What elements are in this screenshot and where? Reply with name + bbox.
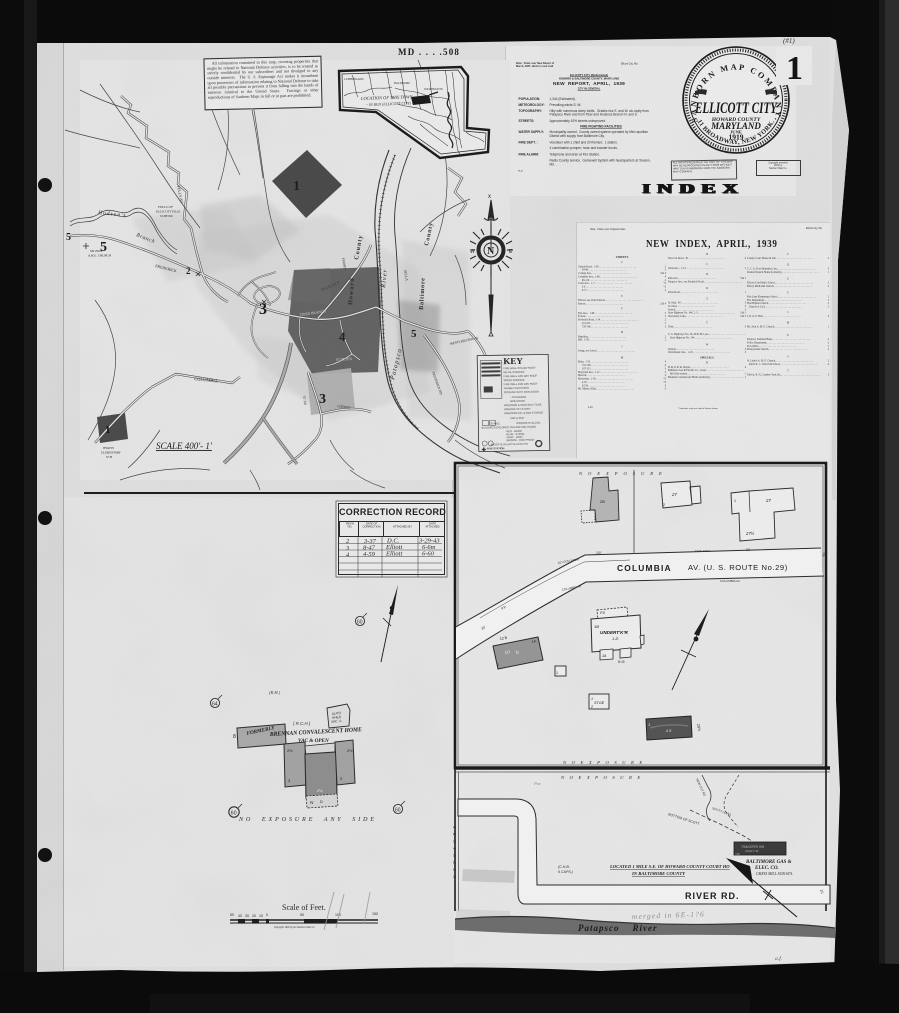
svg-text:60: 60: [357, 620, 363, 626]
svg-text:10: 10: [259, 914, 263, 918]
svg-text:40: 40: [238, 914, 242, 918]
svg-text:1B: 1B: [594, 624, 599, 629]
svg-text:27½: 27½: [745, 531, 755, 536]
svg-text:29½: 29½: [696, 723, 701, 732]
svg-text:N O E X P O S U R E: N O E X P O S U R E: [578, 471, 664, 476]
svg-text:50: 50: [230, 913, 234, 917]
svg-text:SCOTT LEVEL: SCOTT LEVEL: [712, 806, 733, 817]
svg-text:4: 4: [346, 551, 350, 558]
svg-text:E X P O S U R E: E X P O S U R E: [452, 824, 457, 879]
svg-text:12 B: 12 B: [499, 636, 508, 641]
svg-text:6 CAPS.): 6 CAPS.): [558, 870, 573, 874]
svg-text:Patapsco River: Patapsco River: [578, 923, 658, 933]
svg-text:2: 2: [590, 705, 593, 709]
svg-text:10'/: 10'/: [596, 551, 601, 555]
svg-text:2½: 2½: [347, 748, 353, 753]
svg-text:50: 50: [300, 913, 304, 917]
svg-text:8: 8: [233, 734, 236, 740]
svg-text:64: 64: [212, 702, 218, 708]
svg-text:D: D: [320, 799, 323, 804]
svg-text:30: 30: [245, 914, 249, 918]
svg-text:1A: 1A: [602, 654, 607, 658]
svg-text:ELLICOTT CITY: ELLICOTT CITY: [694, 100, 778, 117]
svg-text:a.f.: a.f.: [775, 955, 782, 962]
svg-text:STGE: STGE: [594, 701, 605, 705]
svg-text:33: 33: [746, 548, 750, 552]
svg-text:(C.H.B.: (C.H.B.: [558, 865, 570, 869]
svg-text:WASHINGTON: WASHINGTON: [424, 88, 443, 91]
svg-text:20: 20: [252, 914, 256, 918]
svg-text:N O E X P O S U R E: N O E X P O S U R E: [560, 775, 642, 780]
svg-text:NEW CUT RD: NEW CUT RD: [695, 778, 707, 798]
svg-text:GRAYS MILL SUB-STA.: GRAYS MILL SUB-STA.: [756, 872, 793, 876]
svg-text:BALTIMORE GAS &: BALTIMORE GAS &: [745, 860, 792, 865]
svg-text:A B: A B: [665, 729, 672, 733]
svg-text:2B: 2B: [600, 499, 605, 504]
svg-text:THIS AREA: THIS AREA: [695, 549, 711, 553]
svg-text:IN BALTIMORE COUNTY: IN BALTIMORE COUNTY: [631, 871, 686, 876]
svg-text:merged in 6E-1?6: merged in 6E-1?6: [632, 909, 705, 921]
svg-text:0: 0: [266, 913, 268, 917]
svg-text:1-D: 1-D: [612, 636, 619, 641]
svg-text:27: 27: [671, 492, 677, 497]
svg-text:F6: F6: [600, 610, 605, 615]
svg-text:6-60: 6-60: [422, 550, 435, 557]
svg-text:ELEC. CO.: ELEC. CO.: [754, 866, 779, 871]
svg-text:LOCATED 1 MILE S.E. OF HOWARD: LOCATED 1 MILE S.E. OF HOWARD COUNTY COU…: [609, 864, 730, 869]
svg-text:BALTIMORE: BALTIMORE: [394, 82, 410, 85]
svg-text:( R.C.H ): ( R.C.H ): [293, 721, 311, 726]
svg-text:AV. (U. S. ROUTE No.29): AV. (U. S. ROUTE No.29): [688, 563, 788, 572]
svg-text:Y.B.: Y.B.: [735, 852, 740, 856]
svg-text:2½: 2½: [287, 748, 293, 753]
svg-text:K=5: K=5: [618, 660, 625, 664]
svg-text:4-59: 4-59: [363, 551, 376, 558]
svg-text:2: 2: [663, 503, 665, 507]
svg-text:CUMBERLAND: CUMBERLAND: [344, 78, 364, 81]
svg-text:VAULT 32: VAULT 32: [745, 849, 759, 853]
svg-text:1919: 1919: [729, 133, 744, 142]
svg-text:60: 60: [395, 808, 401, 814]
svg-text:2½: 2½: [317, 788, 323, 793]
svg-text:BOTTOM OF SCOTT: BOTTOM OF SCOTT: [668, 812, 700, 826]
svg-text:VAC & OPEN: VAC & OPEN: [298, 738, 329, 744]
svg-text:2: 2: [346, 538, 350, 545]
svg-text:RIVER RD.: RIVER RD.: [685, 891, 740, 901]
svg-text:1: 1: [734, 499, 736, 503]
svg-text:COLUMBIA AV: COLUMBIA AV: [720, 579, 740, 583]
svg-text:Elliott: Elliott: [385, 550, 402, 557]
svg-text:1: 1: [591, 697, 593, 701]
svg-text:COLUMBIA: COLUMBIA: [617, 563, 672, 573]
svg-text:1: 1: [556, 671, 558, 675]
svg-text:1D: 1D: [504, 649, 510, 655]
svg-text:2: 2: [497, 663, 499, 667]
svg-text:27: 27: [765, 498, 771, 503]
svg-text:Par.: Par.: [533, 781, 541, 786]
svg-text:UNDERT'K'R: UNDERT'K'R: [600, 630, 629, 635]
